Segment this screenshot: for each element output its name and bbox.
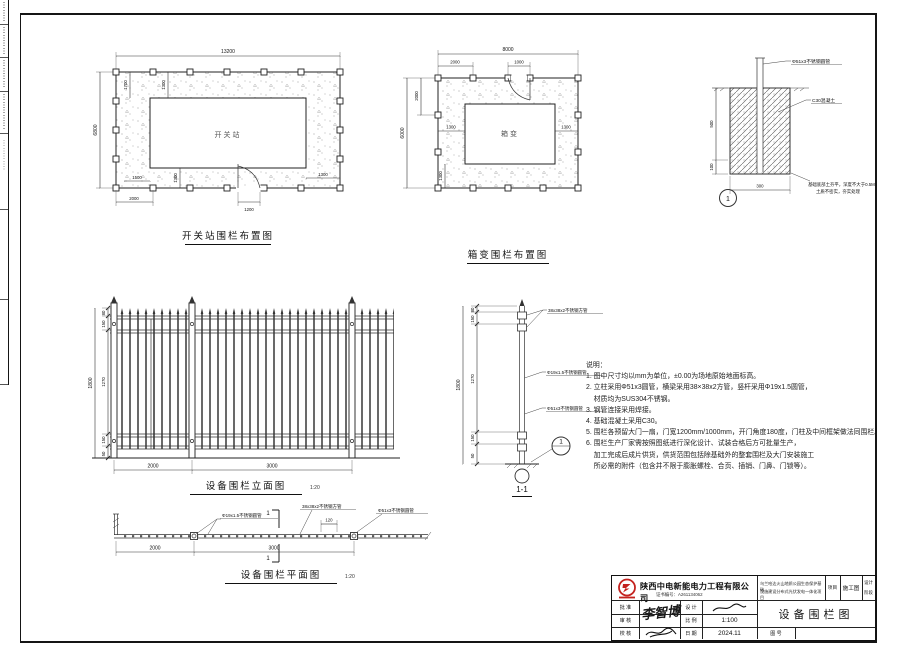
plan-labels: Φ19x1.5不锈钢圆管 38x38x2不锈钢方管 120 Φ51x3不锈钢圆管: [196, 503, 428, 534]
elevation-scale: 1:20: [310, 485, 320, 491]
dim-label: 2000: [129, 196, 139, 201]
rail-label: 38x38x2不锈钢方管: [548, 307, 588, 314]
note-line: 6. 围栏生产厂家需按照图纸进行深化设计、试装合格后方可批量生产，: [586, 438, 888, 449]
note-line: 所必需的附件（包含并不限于膨胀螺栓、合页、插销、门鼻、门锁等）。: [586, 461, 888, 472]
note-line: 5. 围栏各预留大门一扇，门宽1200mm/1000mm，开门角度180度，门柱…: [586, 427, 888, 438]
dim-label: 80: [101, 310, 106, 315]
dim-label: 100: [709, 163, 714, 171]
note-line: 3. 钢管连接采用焊接。: [586, 405, 888, 416]
dim-label: 1700: [123, 80, 128, 90]
project-label: 项目: [825, 576, 840, 600]
fence-plan-view: 1 1 Φ19x1.5不锈钢圆管 38x38x2不锈钢方管 120 Φ51x3不…: [96, 498, 446, 590]
notes-block: 说明： 1. 图中尺寸均以mm为单位，±0.00为场地原始地面标高。 2. 立柱…: [586, 360, 888, 472]
dim-label: 1300: [438, 171, 443, 181]
box-plan-title: 箱变围栏布置图: [468, 249, 549, 261]
drawing-number-label: 图 号: [757, 627, 795, 639]
frame-top: [20, 13, 877, 15]
switch-station-plan: 13200 6800 开关站 1700 1300 1500: [88, 40, 368, 258]
box-plan-fence: 箱变: [438, 78, 578, 188]
fence-elevation: 80 150 1270 150 50 1800 2000 3000 设备围栏立面…: [78, 286, 413, 506]
note-line: 加工完成后成片供货，供货范围包括除基础外的整套围栏及大门安装施工: [586, 450, 888, 461]
dim-label: 6000: [400, 127, 406, 138]
dim-label: 13200: [221, 49, 235, 55]
pipe-label: Φ51x3不锈钢圆管: [792, 58, 830, 65]
dim-label: 1500: [132, 175, 142, 180]
dim-label: 1300: [318, 172, 328, 177]
room-label: 开关站: [215, 130, 242, 139]
note-line: 材质均为SUS304不锈钢。: [586, 394, 888, 405]
drawing-title: 设备围栏图: [757, 600, 875, 627]
box-transformer-plan: 8000 2000 1000 6000 2000 箱变: [393, 36, 598, 268]
dim-label: 2000: [414, 91, 419, 101]
note-line: 4. 基础混凝土采用C30。: [586, 416, 888, 427]
drawing-number-value: [795, 627, 875, 639]
designer-signature: [710, 602, 748, 614]
company-logo: [616, 578, 638, 599]
switch-plan-title: 开关站围栏布置图: [182, 230, 274, 242]
dim-label: 150: [101, 436, 106, 444]
plan-view-title: 设备围栏平面图: [241, 569, 322, 581]
dim-label: 1800: [456, 379, 462, 390]
scale-value: 1:100: [702, 614, 757, 627]
section-detail-bubble: 1: [531, 437, 570, 462]
note-line: 2. 立柱采用Φ51x3圆管，横梁采用38×38x2方管，竖杆采用Φ19x1.5…: [586, 382, 888, 393]
dim-label: 500: [709, 120, 714, 128]
dim-label: 150: [101, 320, 106, 328]
dim-label: 1300: [161, 80, 166, 90]
detail-foundation: [712, 58, 809, 174]
dim-label: 8000: [502, 47, 513, 53]
title-block: 陕西中电新能电力工程有限公司 证书编号：A261134062 乌兰哈达火山地质公…: [611, 575, 877, 641]
plan-dims: 2000 3000: [116, 541, 354, 556]
phase-line1: 设计: [862, 578, 875, 588]
section-post: [505, 299, 539, 483]
date-col-label: 日 期: [680, 627, 702, 639]
dim-label: 50: [101, 451, 106, 456]
phase-line2: 阶段: [862, 588, 875, 598]
dim-label: 1300: [173, 173, 178, 183]
approve-row-label: 批 准: [612, 600, 639, 614]
dim-label: 150: [470, 315, 475, 323]
dim-label: 1300: [561, 125, 571, 130]
detail-bubble: 1: [720, 190, 737, 207]
post-label: Φ51x3不锈钢圆管: [547, 405, 583, 412]
dim-label: 6800: [93, 124, 99, 135]
dim-label: 2000: [450, 60, 460, 65]
section-mark-label: 1: [266, 556, 270, 562]
reviewer-signature: [644, 627, 678, 639]
switch-plan-fence: 开关站: [116, 72, 340, 188]
dim-label: 1270: [101, 377, 106, 387]
dim-label: 3000: [268, 546, 279, 552]
dim-label: 300: [756, 184, 764, 189]
approver-signature: 李智博: [640, 600, 686, 623]
dim-label: 80: [470, 307, 475, 312]
frame-left: [20, 13, 21, 643]
detail-ref-number: 1: [559, 439, 563, 446]
section-mark-label: 1: [266, 511, 270, 517]
elevation-title: 设备围栏立面图: [206, 480, 287, 492]
dim-label: 2000: [149, 546, 160, 552]
note-line: 1. 图中尺寸均以mm为单位，±0.00为场地原始地面标高。: [586, 371, 888, 382]
section-dims: 80 150 1270 150 50 1800: [456, 304, 517, 466]
dim-label: 2000: [147, 464, 158, 470]
check-row-label: 审 核: [612, 614, 639, 627]
frame-bottom: [20, 641, 877, 643]
project-name-line2: 设施建设分布式光伏发电一体化项目: [760, 589, 824, 601]
room-label: 箱变: [501, 129, 519, 138]
foundation-note-2: 土质不密实，夯实处理: [816, 188, 861, 195]
company-cert-number: 证书编号：A261134062: [656, 592, 756, 598]
dim-label: 1270: [470, 374, 475, 384]
dim-label: 120: [325, 518, 333, 523]
dim-label: 50: [470, 453, 475, 458]
picket-label: Φ19x1.5不锈钢圆管: [547, 369, 587, 376]
date-value: 2024.11: [702, 627, 757, 639]
detail-bubble-number: 1: [726, 196, 730, 203]
post-label: Φ51x3不锈钢圆管: [378, 507, 414, 514]
concrete-label: C30混凝土: [812, 97, 835, 104]
dim-label: 3000: [266, 464, 277, 470]
dim-label: 1000: [514, 60, 524, 65]
review-row-label: 校 核: [612, 627, 639, 639]
dim-label: 150: [470, 434, 475, 442]
stage-label: 施工图: [840, 576, 862, 600]
drawing-sheet: 13200 6800 开关站 1700 1300 1500: [0, 0, 900, 650]
foundation-detail: 500 100 300 Φ51x3不锈钢圆管 C30混凝土 基础底部土夯平，深度…: [658, 50, 886, 212]
notes-heading: 说明：: [586, 360, 888, 371]
plan-fence-bar: [113, 514, 431, 540]
rail-label: 38x38x2不锈钢方管: [302, 503, 342, 510]
dim-label: 1800: [88, 377, 94, 388]
dim-label: 1200: [244, 207, 254, 212]
foundation-note-1: 基础底部土夯平，深度不大于0.5M: [808, 181, 875, 188]
dim-label: 1300: [446, 125, 456, 130]
section-title: 1-1: [516, 485, 528, 494]
picket-label: Φ19x1.5不锈钢圆管: [222, 512, 262, 519]
plan-view-scale: 1:20: [345, 574, 355, 580]
